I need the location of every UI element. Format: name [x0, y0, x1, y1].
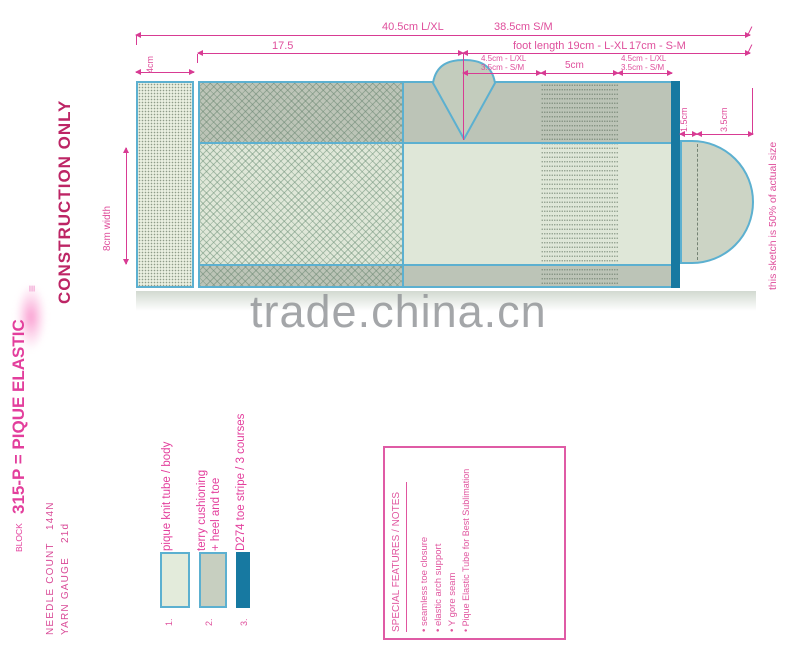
dim-label-width: 8cm width — [103, 163, 113, 251]
yarn-gauge-line: YARN GAUGE 21d — [61, 501, 71, 635]
dim-label-toe-stripe: 1.5cm — [680, 99, 689, 132]
yarn-gauge-value: 21d — [60, 523, 71, 543]
dim-line-total — [136, 35, 750, 36]
notes-item-2: • elastic arch support — [434, 517, 444, 632]
gore-center-line — [463, 53, 464, 140]
notes-title: SPECIAL FEATURES / NOTES — [392, 482, 402, 632]
dim-line-arch — [541, 73, 618, 74]
watermark-text: trade.china.cn — [250, 286, 547, 338]
legend-label-3: D274 toe stripe / 3 courses — [236, 407, 248, 551]
dim-line-width — [126, 148, 127, 264]
toe-cap — [680, 140, 754, 264]
needle-count-value: 144N — [45, 502, 56, 531]
construction-only-label: CONSTRUCTION ONLY — [56, 84, 73, 304]
legend-label-1: pique knit tube / body — [162, 421, 174, 551]
block-value: 315-P = PIQUE ELASTIC — [9, 319, 28, 514]
sock-cuff — [136, 81, 194, 288]
fold-line-lower — [200, 264, 674, 266]
dim-tick — [136, 36, 137, 45]
needle-count-line: NEEDLE COUNT 144N — [46, 498, 56, 635]
scale-note: this sketch is 50% of actual size — [768, 118, 779, 290]
legend-label-2b: + heel and toe — [211, 451, 223, 551]
legend-num-1: 1. — [165, 612, 174, 626]
dim-tick — [197, 54, 198, 63]
spec-sheet-canvas: CONSTRUCTION ONLY ≡ BLOCK 315-P = PIQUE … — [0, 0, 800, 654]
dim-label-total-lxl: 40.5cm L/XL — [382, 21, 444, 33]
needle-count-label: NEEDLE COUNT — [45, 542, 56, 635]
dim-label-toe-sm: 3.5cm - S/M — [621, 63, 664, 72]
dim-label-foot-sm: 17cm - S-M — [629, 40, 686, 52]
dim-label-total-sm: 38.5cm S/M — [494, 21, 553, 33]
dim-line-toe15 — [680, 134, 697, 135]
dim-tick — [752, 88, 753, 134]
dim-line-heel — [463, 73, 541, 74]
dim-line-leg — [198, 53, 463, 54]
dim-label-cuff: 4cm — [146, 47, 155, 73]
legend-num-3: 3. — [240, 612, 249, 626]
special-features-box — [383, 446, 566, 640]
block-id-label: BLOCK 315-P = PIQUE ELASTIC — [10, 330, 27, 552]
dim-label-heel-lxl: 4.5cm - L/XL — [481, 54, 526, 63]
notes-item-3: • Y gore seam — [448, 557, 458, 632]
legend-swatch-toe-stripe — [236, 552, 250, 608]
dim-label-heel-sm: 3.5cm - S/M — [481, 63, 524, 72]
toe-stitch-line — [697, 144, 698, 260]
bottom-fold-band — [200, 266, 674, 286]
dim-label-arch: 5cm — [565, 60, 584, 71]
leg-foot-boundary-line — [402, 83, 404, 286]
dim-label-foot-lxl: foot length 19cm - L-XL — [513, 40, 627, 52]
dim-label-toe-lxl: 4.5cm - L/XL — [621, 54, 666, 63]
fold-line-upper — [200, 142, 674, 144]
block-label: BLOCK — [14, 523, 24, 552]
legend-num-2: 2. — [205, 612, 214, 626]
dim-line-toe35 — [697, 134, 753, 135]
notes-item-1: • seamless toe closure — [420, 514, 430, 632]
legend-label-2a: terry cushioning — [197, 451, 209, 551]
dim-line-toe45 — [618, 73, 672, 74]
dim-label-leg: 17.5 — [272, 40, 293, 52]
legend-swatch-pique — [160, 552, 190, 608]
yarn-gauge-label: YARN GAUGE — [60, 557, 71, 635]
legend-swatch-terry — [199, 552, 227, 608]
notes-title-underline — [406, 482, 407, 632]
notes-item-4: • Pique Elastic Tube for Best Sublimatio… — [462, 452, 471, 632]
dim-label-toe-len: 3.5cm — [720, 99, 729, 132]
